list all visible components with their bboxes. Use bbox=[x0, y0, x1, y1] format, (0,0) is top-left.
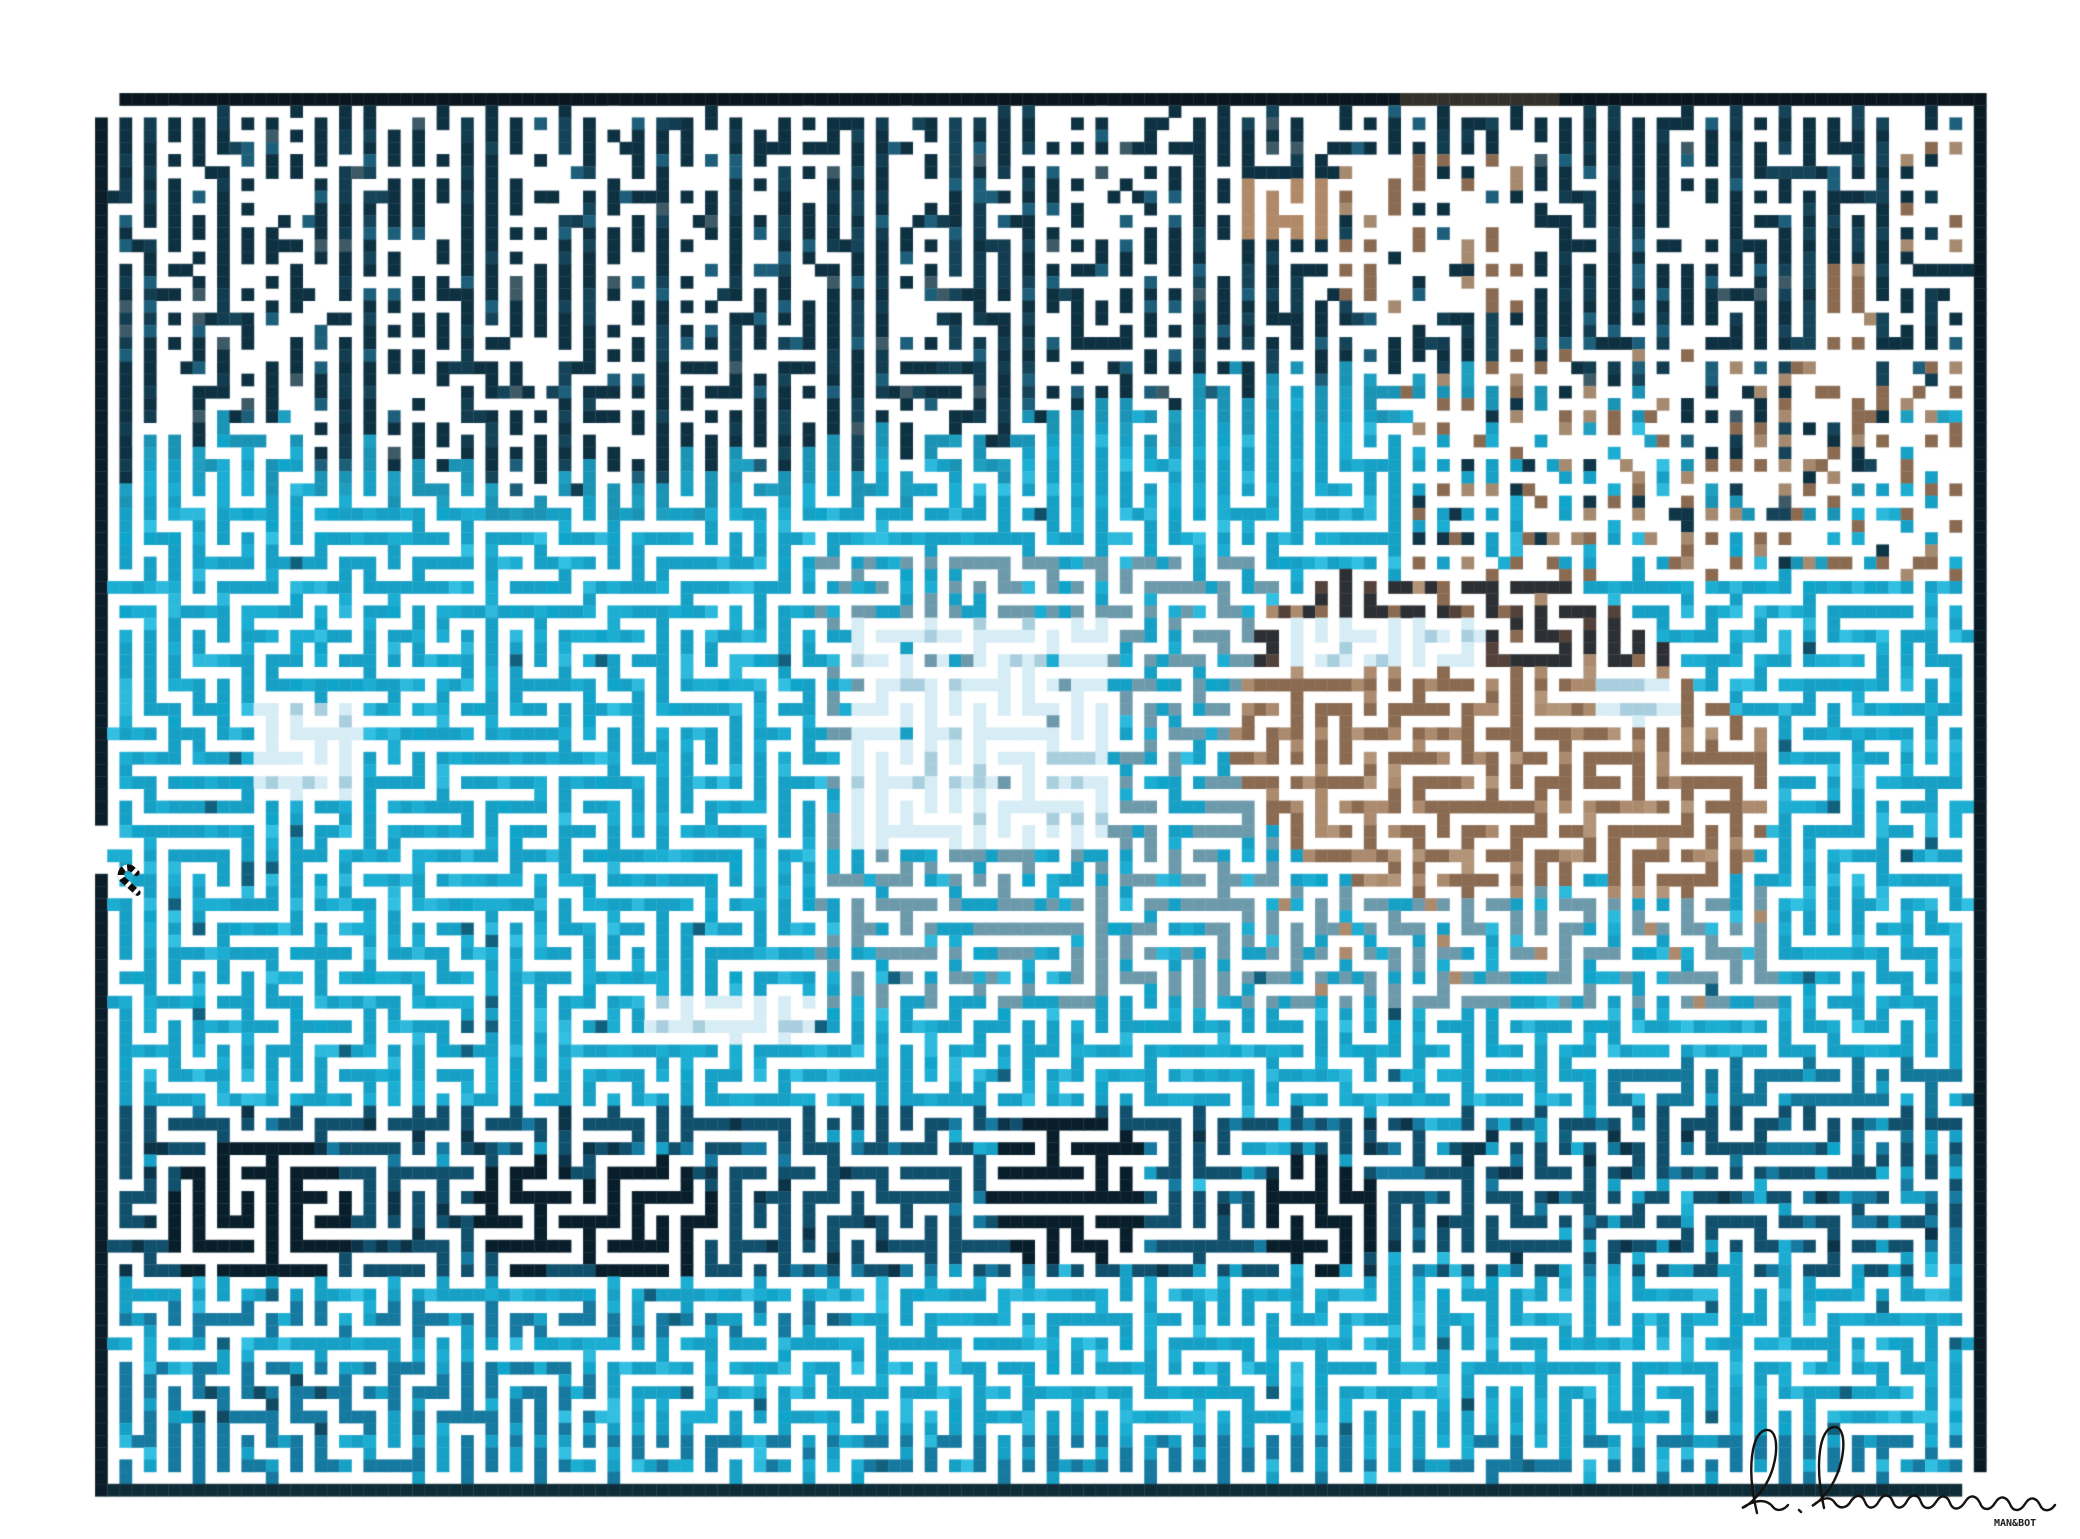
watermark-text: MAN&BOT bbox=[1994, 1518, 2080, 1529]
maze-artwork: MAN&BOT bbox=[0, 0, 2080, 1539]
maze-canvas bbox=[0, 0, 2080, 1539]
